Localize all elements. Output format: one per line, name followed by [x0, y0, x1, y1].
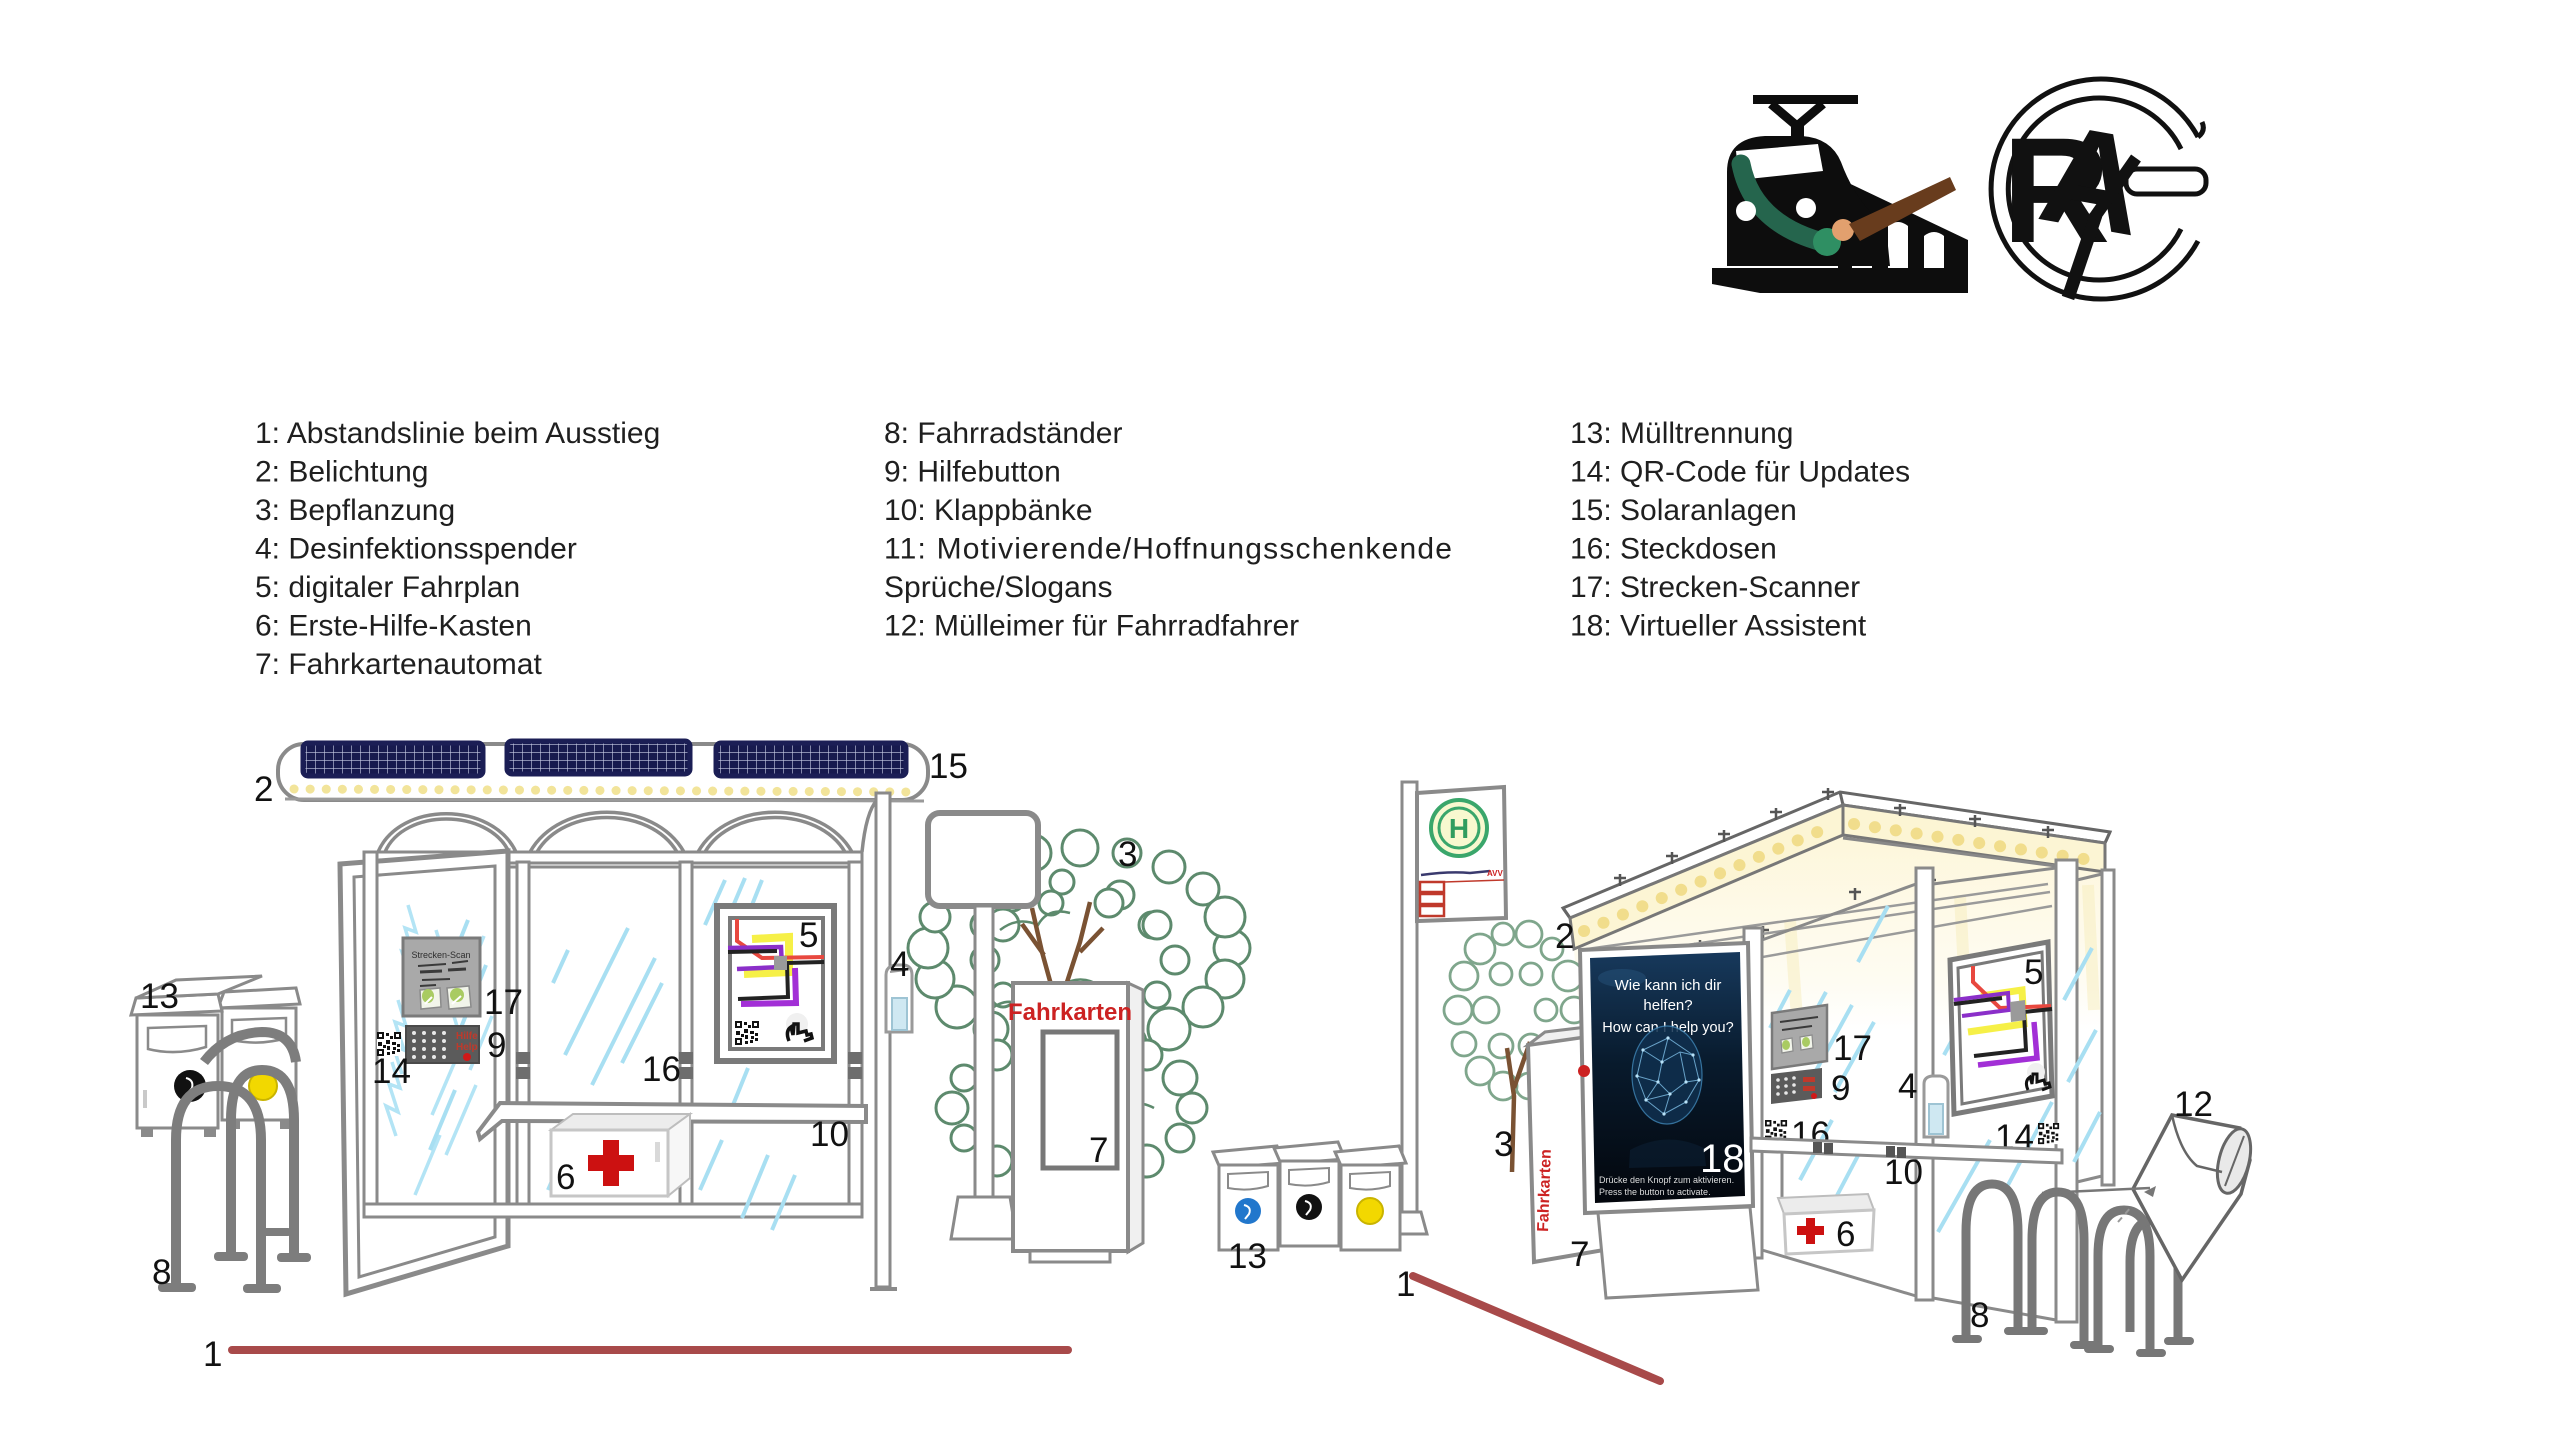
svg-text:13: Mülltrennung: 13: Mülltrennung	[1570, 417, 1793, 450]
svg-text:Help: Help	[456, 1042, 478, 1053]
svg-text:1: 1	[1396, 1265, 1415, 1304]
svg-text:5: digitaler Fahrplan: 5: digitaler Fahrplan	[255, 571, 520, 604]
svg-text:Strecken-Scan: Strecken-Scan	[411, 950, 470, 960]
svg-text:3: Bepflanzung: 3: Bepflanzung	[255, 494, 455, 527]
svg-text:8: 8	[1970, 1296, 1989, 1335]
svg-text:2: 2	[254, 770, 273, 809]
svg-text:11: Motivierende/Hoffnungssche: 11: Motivierende/Hoffnungsschenkende	[884, 533, 1453, 566]
svg-text:9: Hilfebutton: 9: Hilfebutton	[884, 456, 1061, 489]
svg-text:10: Klappbänke: 10: Klappbänke	[884, 494, 1093, 527]
svg-text:16: Steckdosen: 16: Steckdosen	[1570, 533, 1777, 566]
svg-text:2: 2	[1555, 917, 1574, 956]
svg-text:14: 14	[372, 1052, 411, 1091]
svg-text:Drücke den Knopf zum aktiviere: Drücke den Knopf zum aktivieren.	[1599, 1175, 1734, 1185]
svg-text:6: 6	[1836, 1215, 1855, 1254]
svg-text:17: Strecken-Scanner: 17: Strecken-Scanner	[1570, 571, 1860, 604]
svg-text:Press the button to activate.: Press the button to activate.	[1599, 1187, 1711, 1197]
svg-text:15: Solaranlagen: 15: Solaranlagen	[1570, 494, 1797, 527]
svg-text:3: 3	[1118, 835, 1137, 874]
svg-text:12: 12	[2174, 1085, 2213, 1124]
svg-text:2: Belichtung: 2: Belichtung	[255, 456, 428, 489]
svg-text:3: 3	[1494, 1125, 1513, 1164]
svg-text:Sprüche/Slogans: Sprüche/Slogans	[884, 571, 1113, 604]
svg-text:8: Fahrradständer: 8: Fahrradständer	[884, 417, 1122, 450]
svg-text:14: QR-Code für Updates: 14: QR-Code für Updates	[1570, 456, 1910, 489]
svg-text:4: 4	[1898, 1067, 1917, 1106]
svg-text:7: 7	[1089, 1131, 1108, 1170]
svg-text:10: 10	[1884, 1153, 1923, 1192]
svg-text:helfen?: helfen?	[1643, 997, 1692, 1014]
svg-text:1: Abstandslinie beim Ausstieg: 1: Abstandslinie beim Ausstieg	[255, 417, 660, 450]
svg-text:10: 10	[810, 1115, 849, 1154]
svg-text:Fahrkarten: Fahrkarten	[1008, 999, 1132, 1026]
svg-text:4: Desinfektionsspender: 4: Desinfektionsspender	[255, 533, 577, 566]
svg-text:15: 15	[929, 747, 968, 786]
svg-text:13: 13	[1228, 1237, 1267, 1276]
svg-text:17: 17	[1833, 1029, 1872, 1068]
svg-text:6: 6	[556, 1158, 575, 1197]
svg-text:17: 17	[484, 983, 523, 1022]
svg-text:Fahrkarten: Fahrkarten	[1535, 1149, 1555, 1232]
svg-text:8: 8	[152, 1253, 171, 1292]
svg-text:9: 9	[1831, 1069, 1850, 1108]
svg-text:4: 4	[890, 945, 909, 984]
svg-text:7: 7	[1570, 1235, 1589, 1274]
svg-text:1: 1	[203, 1335, 222, 1374]
svg-text:H: H	[1449, 813, 1469, 844]
svg-text:9: 9	[487, 1026, 506, 1065]
svg-text:18: Virtueller Assistent: 18: Virtueller Assistent	[1570, 610, 1867, 643]
svg-text:12: Mülleimer für Fahrradfahre: 12: Mülleimer für Fahrradfahrer	[884, 610, 1299, 643]
svg-text:5: 5	[799, 916, 818, 955]
svg-text:Wie kann ich dir: Wie kann ich dir	[1615, 977, 1722, 994]
svg-text:13: 13	[140, 977, 179, 1016]
svg-text:6: Erste-Hilfe-Kasten: 6: Erste-Hilfe-Kasten	[255, 610, 532, 643]
svg-text:AVV: AVV	[1487, 869, 1504, 878]
svg-text:5: 5	[2024, 953, 2043, 992]
svg-text:Hilfe: Hilfe	[456, 1031, 478, 1042]
svg-text:7: Fahrkartenautomat: 7: Fahrkartenautomat	[255, 648, 542, 681]
svg-text:16: 16	[642, 1050, 681, 1089]
